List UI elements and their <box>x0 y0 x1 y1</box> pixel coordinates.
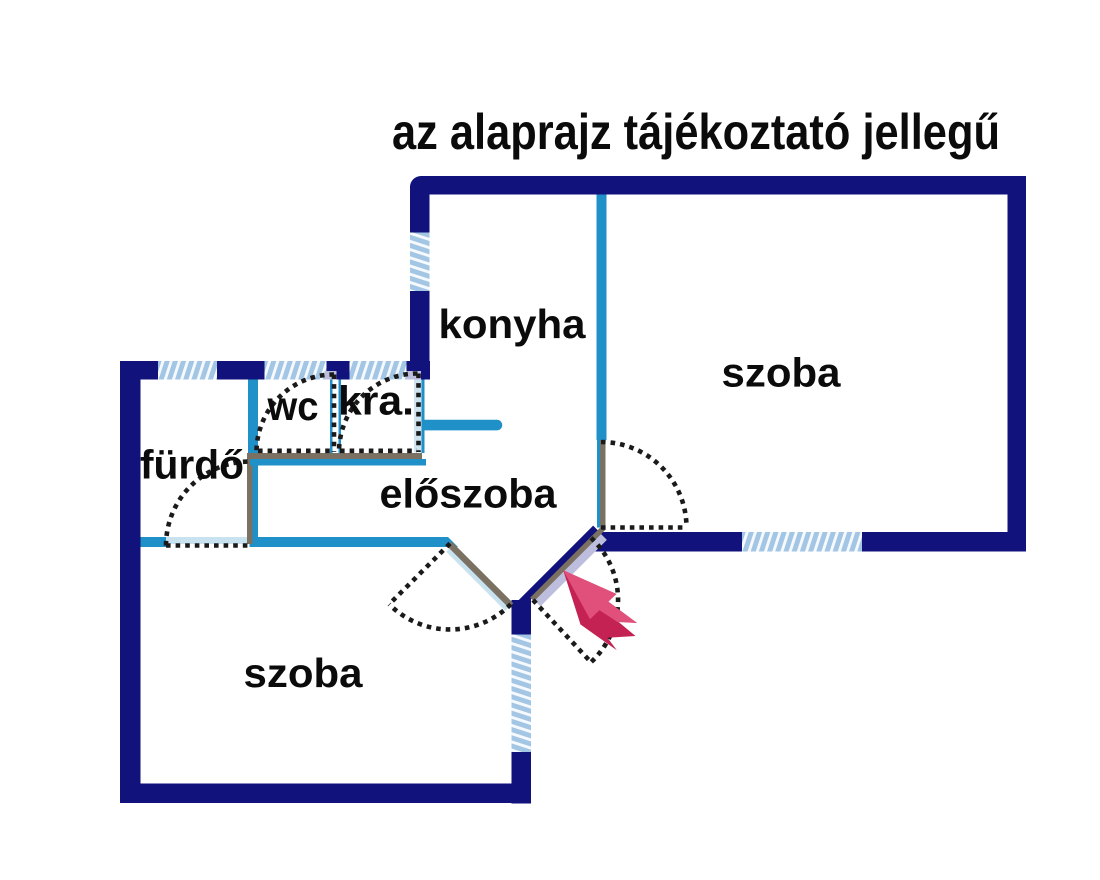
svg-text:szoba: szoba <box>722 350 842 396</box>
svg-text:wc: wc <box>267 383 319 429</box>
svg-text:előszoba: előszoba <box>380 471 558 517</box>
svg-text:szoba: szoba <box>244 650 364 696</box>
svg-text:az alaprajz tájékoztató jelleg: az alaprajz tájékoztató jellegű <box>392 104 1000 160</box>
svg-text:fürdő: fürdő <box>140 442 244 488</box>
svg-text:konyha: konyha <box>439 301 587 347</box>
svg-text:kra.: kra. <box>338 378 414 424</box>
